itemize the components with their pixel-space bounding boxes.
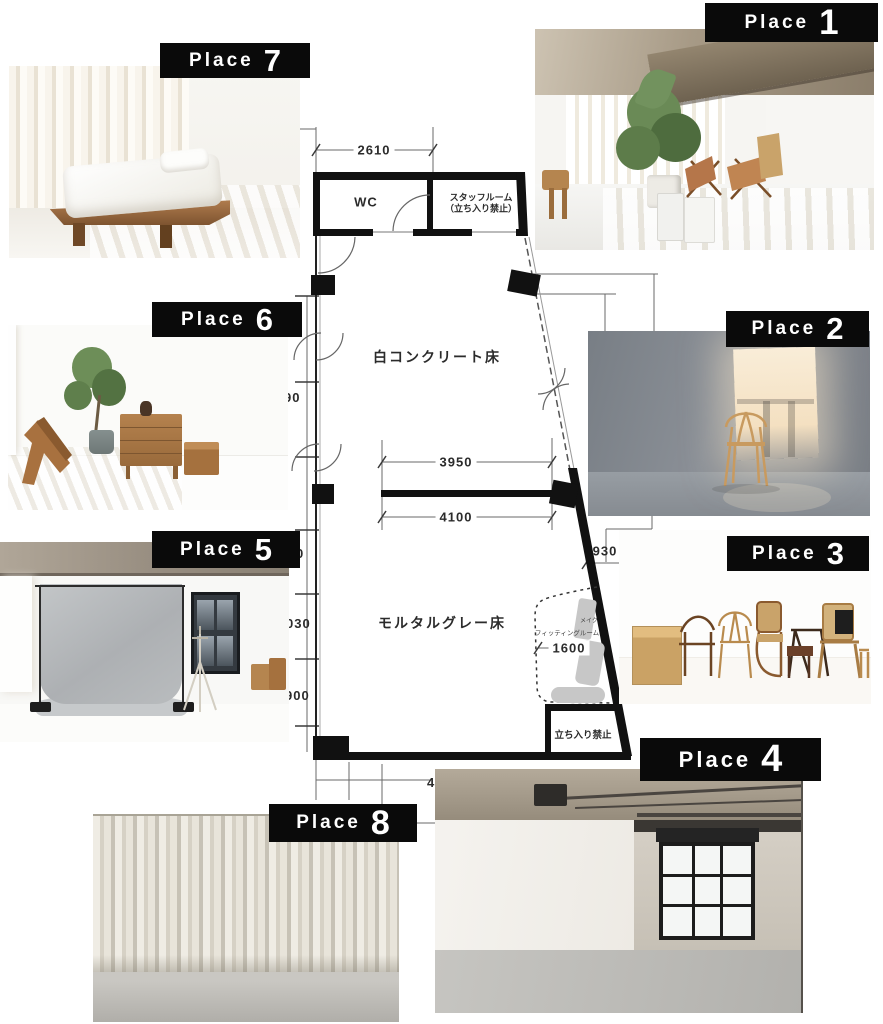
no-entry-label: 立ち入り禁止 xyxy=(554,727,611,741)
dim-bottom-partial: 4 xyxy=(427,775,435,790)
slanted-window-wall xyxy=(525,237,574,470)
place-2-label: Place 2 xyxy=(726,311,869,347)
place-4-photo xyxy=(435,769,803,1013)
curtain-hem-shadow xyxy=(93,955,399,972)
place-label-text: Place xyxy=(296,812,361,834)
dim-top-2610: 2610 xyxy=(354,143,395,158)
concrete-floor xyxy=(435,950,803,1013)
wood-chairs xyxy=(535,29,874,250)
place-6-photo xyxy=(8,325,288,510)
place-4-label: Place 4 xyxy=(640,738,821,781)
wishbone-chair xyxy=(588,331,870,516)
dim-4100: 4100 xyxy=(436,510,477,525)
place-label-text: Place xyxy=(189,50,254,72)
place-label-text: Place xyxy=(752,543,817,565)
photo-edge xyxy=(801,769,803,1013)
dim-fragment-030: 030 xyxy=(286,616,311,631)
floor-white-label: 白コンクリート床 xyxy=(373,347,501,367)
fitting-room-label: フィッティングルーム xyxy=(535,627,599,637)
place-number: 5 xyxy=(255,532,272,568)
place-label-text: Place xyxy=(752,318,817,340)
place-number: 1 xyxy=(819,3,838,43)
place-label-text: Place xyxy=(744,12,809,34)
dim-1600: 1600 xyxy=(549,641,590,656)
door-arcs xyxy=(292,195,569,471)
place-8-photo xyxy=(93,814,399,1022)
bed-leg xyxy=(160,225,172,248)
place-number: 7 xyxy=(264,43,281,79)
place-number: 3 xyxy=(827,536,844,572)
place-3-label: Place 3 xyxy=(727,536,869,571)
makeup-label: メイク xyxy=(580,616,598,625)
place-number: 4 xyxy=(761,738,782,781)
black-frame-window xyxy=(659,842,755,940)
place-7-label: Place 7 xyxy=(160,43,310,78)
place-5-label: Place 5 xyxy=(152,531,300,568)
place-7-photo xyxy=(9,66,300,258)
wood-stool xyxy=(269,658,286,690)
place-6-label: Place 6 xyxy=(152,302,302,337)
room-wc-label: WC xyxy=(354,195,378,210)
bed-leg xyxy=(73,223,85,246)
dim-930: 930 xyxy=(593,544,618,559)
dim-3950: 3950 xyxy=(436,455,477,470)
ceiling-duct xyxy=(637,813,803,817)
place-label-text: Place xyxy=(181,309,246,331)
wood-lounge-chair xyxy=(8,325,288,510)
place-number: 2 xyxy=(826,311,843,347)
room-staff-line2: （立ち入り禁止） xyxy=(445,202,517,215)
place-5-photo xyxy=(0,542,289,742)
place-1-label: Place 1 xyxy=(705,3,878,42)
place-8-label: Place 8 xyxy=(269,804,417,842)
window-shade-box xyxy=(656,828,759,843)
place-number: 6 xyxy=(256,302,273,338)
window-mullion xyxy=(663,874,751,877)
concrete-floor xyxy=(93,972,399,1022)
place-1-photo xyxy=(535,29,874,250)
place-label-text: Place xyxy=(180,539,245,561)
place-2-photo xyxy=(588,331,870,516)
projector xyxy=(534,784,567,806)
window-mullion xyxy=(720,846,723,936)
window-mullion xyxy=(663,904,751,907)
studio-floorplan-page: 2610 WC スタッフルーム （立ち入り禁止） 白コンクリート床 3950 4… xyxy=(0,0,883,1024)
tripod xyxy=(0,542,289,742)
place-label-text: Place xyxy=(679,747,752,773)
window-mullion xyxy=(692,846,695,936)
floor-gray-label: モルタルグレー床 xyxy=(378,613,506,633)
place-number: 8 xyxy=(371,804,390,843)
